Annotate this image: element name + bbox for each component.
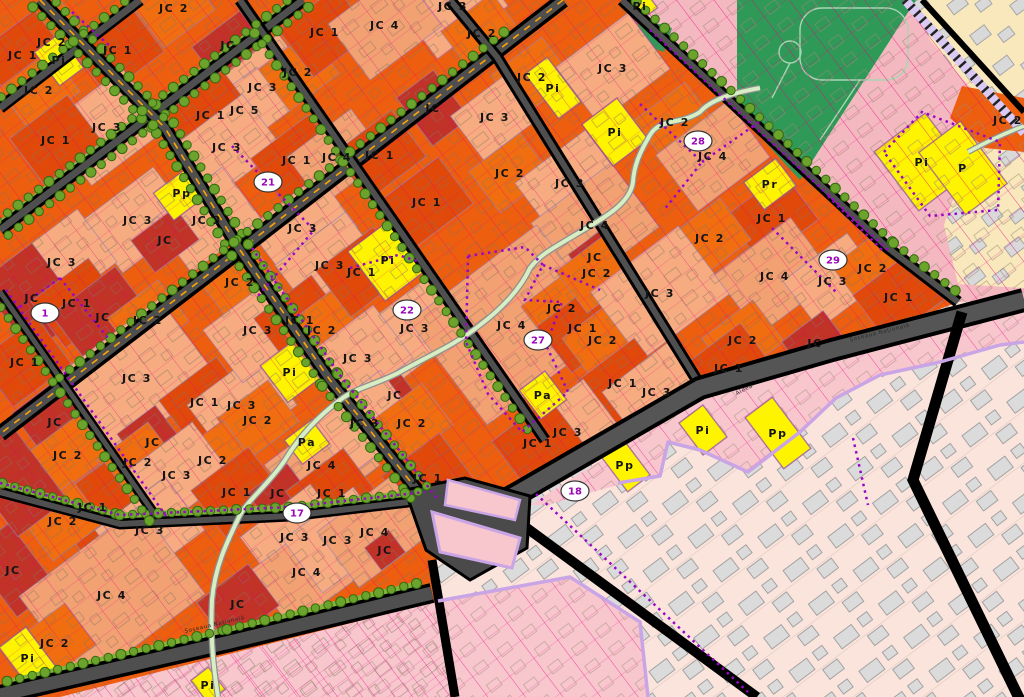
tree-icon [115,474,123,482]
parcel-label: JC 3 [279,531,310,544]
tree-icon [457,329,465,337]
parcel-label: JC 2 [581,267,612,280]
tree-icon [302,358,310,366]
tree-icon [116,63,124,71]
tree-icon [501,393,509,401]
tree-icon [418,92,426,100]
tree-icon [230,217,240,227]
tree-icon [217,196,225,204]
tree-icon [362,592,370,600]
unit-badge-number: 28 [691,137,705,148]
tree-icon [176,130,184,138]
parcel-label: JC 1 [607,377,638,390]
unit-badge-number: 1 [42,309,49,320]
tree-icon [28,671,36,679]
parcel-label: JC 1 [309,26,340,39]
tree-icon [670,33,678,41]
tree-icon [435,297,443,305]
unit-badge[interactable]: 22 [393,300,421,320]
tree-icon [360,189,370,199]
tree-icon [428,84,436,92]
tree-icon [262,11,272,21]
tree-icon [128,137,136,145]
tree-icon [316,125,326,135]
tree-icon [38,60,48,70]
parcel-label: JC 1 [412,472,443,485]
tree-icon [209,254,217,262]
parcel-label: JC 3 [161,469,192,482]
parcel-label: Pa [298,436,316,449]
tree-icon [284,19,292,27]
tree-icon [515,414,525,424]
tree-icon [130,495,138,503]
tree-icon [108,463,116,471]
tree-icon [11,324,21,334]
tree-icon [279,326,287,334]
parcel-label: JC 2 [727,334,758,347]
tree-icon [68,36,78,46]
parcel-label: JC 2 [122,456,153,469]
tree-icon [45,200,53,208]
tree-icon [651,15,659,23]
tree-icon [387,116,395,124]
tree-icon [78,658,88,668]
parcel-label: JC 3 [399,322,430,335]
tree-icon [334,402,342,410]
tree-icon [198,261,208,271]
tree-icon [76,176,84,184]
tree-icon [235,262,243,270]
tree-icon [325,164,333,172]
tree-icon [167,638,175,646]
tree-icon [243,227,251,235]
tree-icon [413,265,421,273]
parcel-label: JC [144,436,160,449]
tree-icon [13,200,23,210]
parcel-label: JC 2 [224,276,255,289]
tree-icon [486,372,494,380]
tree-icon [55,388,65,398]
parcel-label: JC 1 [195,109,226,122]
parcel-label: JC [376,544,392,557]
tree-icon [241,49,251,59]
unit-badge[interactable]: 21 [254,172,282,192]
parcel-label: JC [424,102,440,115]
tree-icon [86,167,96,177]
tree-icon [183,141,191,149]
parcel-label: JC 3 [342,352,373,365]
tree-icon [274,283,282,291]
parcel-label: Pi [20,652,35,665]
parcel-label: JC 2 [306,324,337,337]
parcel-label: JC 2 [197,454,228,467]
tree-icon [40,667,50,677]
tree-icon [442,307,450,315]
tree-icon [368,200,376,208]
parcel-label: JC [4,564,20,577]
parcel-label: JC 1 [883,291,914,304]
parcel-label: JC 2 [992,114,1023,127]
parcel-label: JC 1 [364,149,395,162]
parcel-label: Pi [545,82,560,95]
tree-icon [248,619,256,627]
tree-icon [97,138,105,146]
tree-icon [294,188,302,196]
parcel-label: JC 3 [322,534,353,547]
tree-icon [52,0,60,6]
tree-icon [44,177,54,187]
tree-icon [143,91,151,99]
parcel-label: JC 3 [211,141,242,154]
tree-icon [869,220,877,228]
tree-icon [24,214,34,224]
tree-icon [4,314,12,322]
tree-icon [104,653,112,661]
tree-icon [412,579,422,589]
tree-icon [679,42,687,50]
tree-icon [75,357,85,367]
tree-icon [100,452,110,462]
tree-icon [324,136,332,144]
unit-badge-number: 17 [290,509,304,520]
tree-icon [841,193,849,201]
tree-icon [459,60,467,68]
parcel-label: JC 2 [242,414,273,427]
tree-icon [252,20,260,28]
parcel-label: JC 1 [411,196,442,209]
parcel-label: JC 4 [369,19,400,32]
tree-icon [116,649,126,659]
tree-icon [148,99,156,107]
tree-icon [97,160,105,168]
tree-icon [24,193,32,201]
tree-icon [273,613,281,621]
tree-icon [53,665,61,673]
tree-icon [197,163,205,171]
tree-icon [390,473,400,483]
tree-icon [889,238,899,248]
parcel-label: JC 2 [857,262,888,275]
unit-badge-number: 21 [261,178,275,189]
tree-icon [49,378,57,386]
tree-icon [260,615,270,625]
parcel-label: JC 3 [437,0,468,13]
tree-icon [88,35,96,43]
tree-icon [287,337,295,345]
tree-icon [755,113,763,121]
parcel-label: JC 2 [47,515,78,528]
tree-icon [169,118,179,128]
tree-icon [227,251,237,261]
parcel-label: JC 3 [597,62,628,75]
tree-icon [910,255,918,263]
tree-icon [93,442,101,450]
tree-icon [16,674,24,682]
tree-icon [137,106,147,116]
map-viewport[interactable]: Şoseaua NaţionalăŞoseaua NaţionalăAleea … [0,0,1024,697]
parcel-label: JC [269,487,285,500]
tree-icon [71,410,79,418]
tree-icon [129,105,137,113]
tree-icon [264,212,272,220]
parcel-label: JC 2 [587,334,618,347]
parcel-label: JC 4 [291,566,322,579]
tree-icon [376,123,386,133]
parcel-label: JC 2 [466,27,497,40]
tree-icon [274,204,282,212]
tree-icon [420,275,428,283]
tree-icon [117,144,127,154]
tree-icon [859,210,869,220]
tree-icon [302,104,310,112]
parcel-label: JC 2 [282,66,313,79]
tree-icon [101,77,109,85]
tree-icon [493,382,503,392]
tree-icon [479,361,487,369]
parcel-label: JC 1 [7,49,38,62]
parcel-label: JC 3 [242,324,273,337]
parcel-label: JC [806,337,822,350]
parcel-label: JC 2 [158,2,189,15]
tree-icon [210,73,220,83]
tree-icon [205,629,213,637]
unit-badge[interactable]: 28 [684,131,712,151]
tree-icon [180,635,188,643]
tree-icon [464,340,472,348]
parcel-label: JC [46,416,62,429]
tree-icon [784,140,792,148]
parcel-label: JC 3 [287,222,318,235]
tree-icon [158,294,166,302]
parcel-label: Pa [534,389,552,402]
parcel-label: Pp [768,427,787,440]
tree-icon [35,207,43,215]
parcel-label: JC 3 [554,177,585,190]
parcel-label: JC 2 [694,232,725,245]
tree-icon [3,209,11,217]
tree-icon [235,622,243,630]
tree-icon [326,392,334,400]
parcel-label: JC 1 [316,487,347,500]
tree-icon [229,237,239,247]
parcel-label: JC 1 [61,297,92,310]
tree-icon [180,173,188,181]
tree-icon [159,91,167,99]
tree-icon [63,399,71,407]
tree-icon [2,676,12,686]
parcel-label: Pi [282,366,297,379]
parcel-label: JC 1 [346,266,377,279]
tree-icon [900,247,908,255]
tree-icon [121,0,129,6]
tree-icon [221,66,229,74]
parcel-label: JC 4 [496,319,527,332]
tree-icon [189,270,197,278]
parcel-label: JC 3 [247,81,278,94]
unit-badge[interactable]: 27 [524,330,552,350]
tree-icon [74,49,82,57]
tree-icon [148,120,158,130]
tree-icon [66,366,74,374]
parcel-label: Pi [51,54,66,67]
tree-icon [211,52,219,60]
parcel-label: JC 2 [516,71,547,84]
tree-icon [349,595,357,603]
tree-icon [850,202,858,210]
tree-icon [293,347,303,357]
parcel-label: JC 1 [102,44,133,57]
tree-icon [168,82,178,92]
tree-icon [390,232,398,240]
tree-icon [96,342,104,350]
tree-icon [213,228,223,238]
tree-icon [179,97,189,107]
tree-icon [26,346,34,354]
parcel-label: JC 4 [359,526,390,539]
tree-icon [115,510,125,520]
tree-icon [287,82,295,90]
tree-icon [92,68,100,76]
tree-icon [468,51,478,61]
parcel-label: JC 1 [9,356,40,369]
tree-icon [0,93,5,101]
tree-icon [298,606,308,616]
parcel-label: JC [23,292,39,305]
tree-icon [660,23,670,33]
tree-icon [232,58,240,66]
tree-icon [7,84,17,94]
parcel-label: JC 3 [479,111,510,124]
parcel-label: JC 2 [52,449,83,462]
parcel-label: JC 3 [46,256,77,269]
tree-icon [336,597,346,607]
tree-icon [82,58,92,68]
parcel-label: JC 4 [96,589,127,602]
parcel-label: JC 2 [396,417,427,430]
unit-badge[interactable]: 1 [31,303,59,323]
tree-icon [919,262,929,272]
tree-icon [86,146,94,154]
parcel-label: JC 2 [36,36,67,49]
parcel-label: JC 3 [91,121,122,134]
parcel-label: JC 1 [522,437,553,450]
parcel-label: JC [386,389,402,402]
tree-icon [822,175,830,183]
tree-icon [28,69,36,77]
parcel-label: JC 3 [552,426,583,439]
tree-icon [108,152,116,160]
tree-icon [698,60,706,68]
parcel-label: JC 3 [644,287,675,300]
tree-icon [4,231,12,239]
parcel-label: JC 3 [226,399,257,412]
tree-icon [879,229,887,237]
unit-badge-number: 22 [400,306,414,317]
parcel-label: JC 3 [122,214,153,227]
tree-icon [159,113,167,121]
tree-icon [294,92,304,102]
tree-icon [508,404,516,412]
parcel-label: JC 3 [641,386,672,399]
tree-icon [265,305,273,313]
parcel-label: JC 3 [121,372,152,385]
tree-icon [830,183,840,193]
tree-icon [305,180,313,188]
tree-icon [398,243,406,251]
tree-icon [717,77,727,87]
unit-badge-number: 29 [826,256,840,267]
parcel-label: JC 4 [321,151,352,164]
tree-icon [314,171,324,181]
tree-icon [199,59,209,69]
tree-icon [120,96,128,104]
tree-icon [142,644,150,652]
tree-icon [28,2,38,12]
unit-badge[interactable]: 18 [561,481,589,501]
parcel-label: JC 2 [39,637,70,650]
tree-icon [793,148,801,156]
tree-icon [317,381,327,391]
tree-icon [203,174,211,182]
parcel-label: Pp [172,187,191,200]
tree-icon [356,140,364,148]
parcel-label: JC [94,311,110,324]
tree-icon [376,211,384,219]
tree-icon [802,157,812,167]
unit-badge[interactable]: 17 [283,503,311,523]
tree-icon [303,2,313,12]
parcel-label: JC 3 [314,259,345,272]
tree-icon [190,89,198,97]
tree-icon [374,588,384,598]
tree-icon [309,369,317,377]
tree-icon [172,162,182,172]
tree-icon [224,207,232,215]
tree-icon [242,28,250,36]
tree-icon [35,185,43,193]
tree-icon [281,294,289,302]
parcel-label: Pi [380,254,395,267]
tree-icon [407,99,417,109]
tree-icon [192,195,202,205]
tree-icon [180,75,188,83]
tree-icon [201,82,209,90]
tree-icon [41,367,49,375]
tree-icon [366,132,374,140]
parcel-label: JC 1 [713,362,744,375]
tree-icon [14,223,22,231]
parcel-label: JC 2 [546,302,577,315]
tree-icon [61,7,69,15]
tree-icon [387,585,395,593]
parcel-label: JC 4 [579,219,610,232]
zoning-map[interactable]: Şoseaua NaţionalăŞoseaua NaţionalăAleea … [0,0,1024,697]
tree-icon [448,68,456,76]
unit-badge[interactable]: 29 [819,250,847,270]
parcel-label: JC [586,251,602,264]
tree-icon [258,40,266,48]
tree-icon [110,5,118,13]
tree-icon [86,350,94,358]
parcel-label: JC 4 [759,270,790,283]
tree-icon [178,278,186,286]
tree-icon [366,442,376,452]
tree-icon [166,151,174,159]
parcel-label: Pi [632,0,647,13]
tree-icon [736,95,744,103]
parcel-label: P [958,162,968,175]
tree-icon [265,50,273,58]
